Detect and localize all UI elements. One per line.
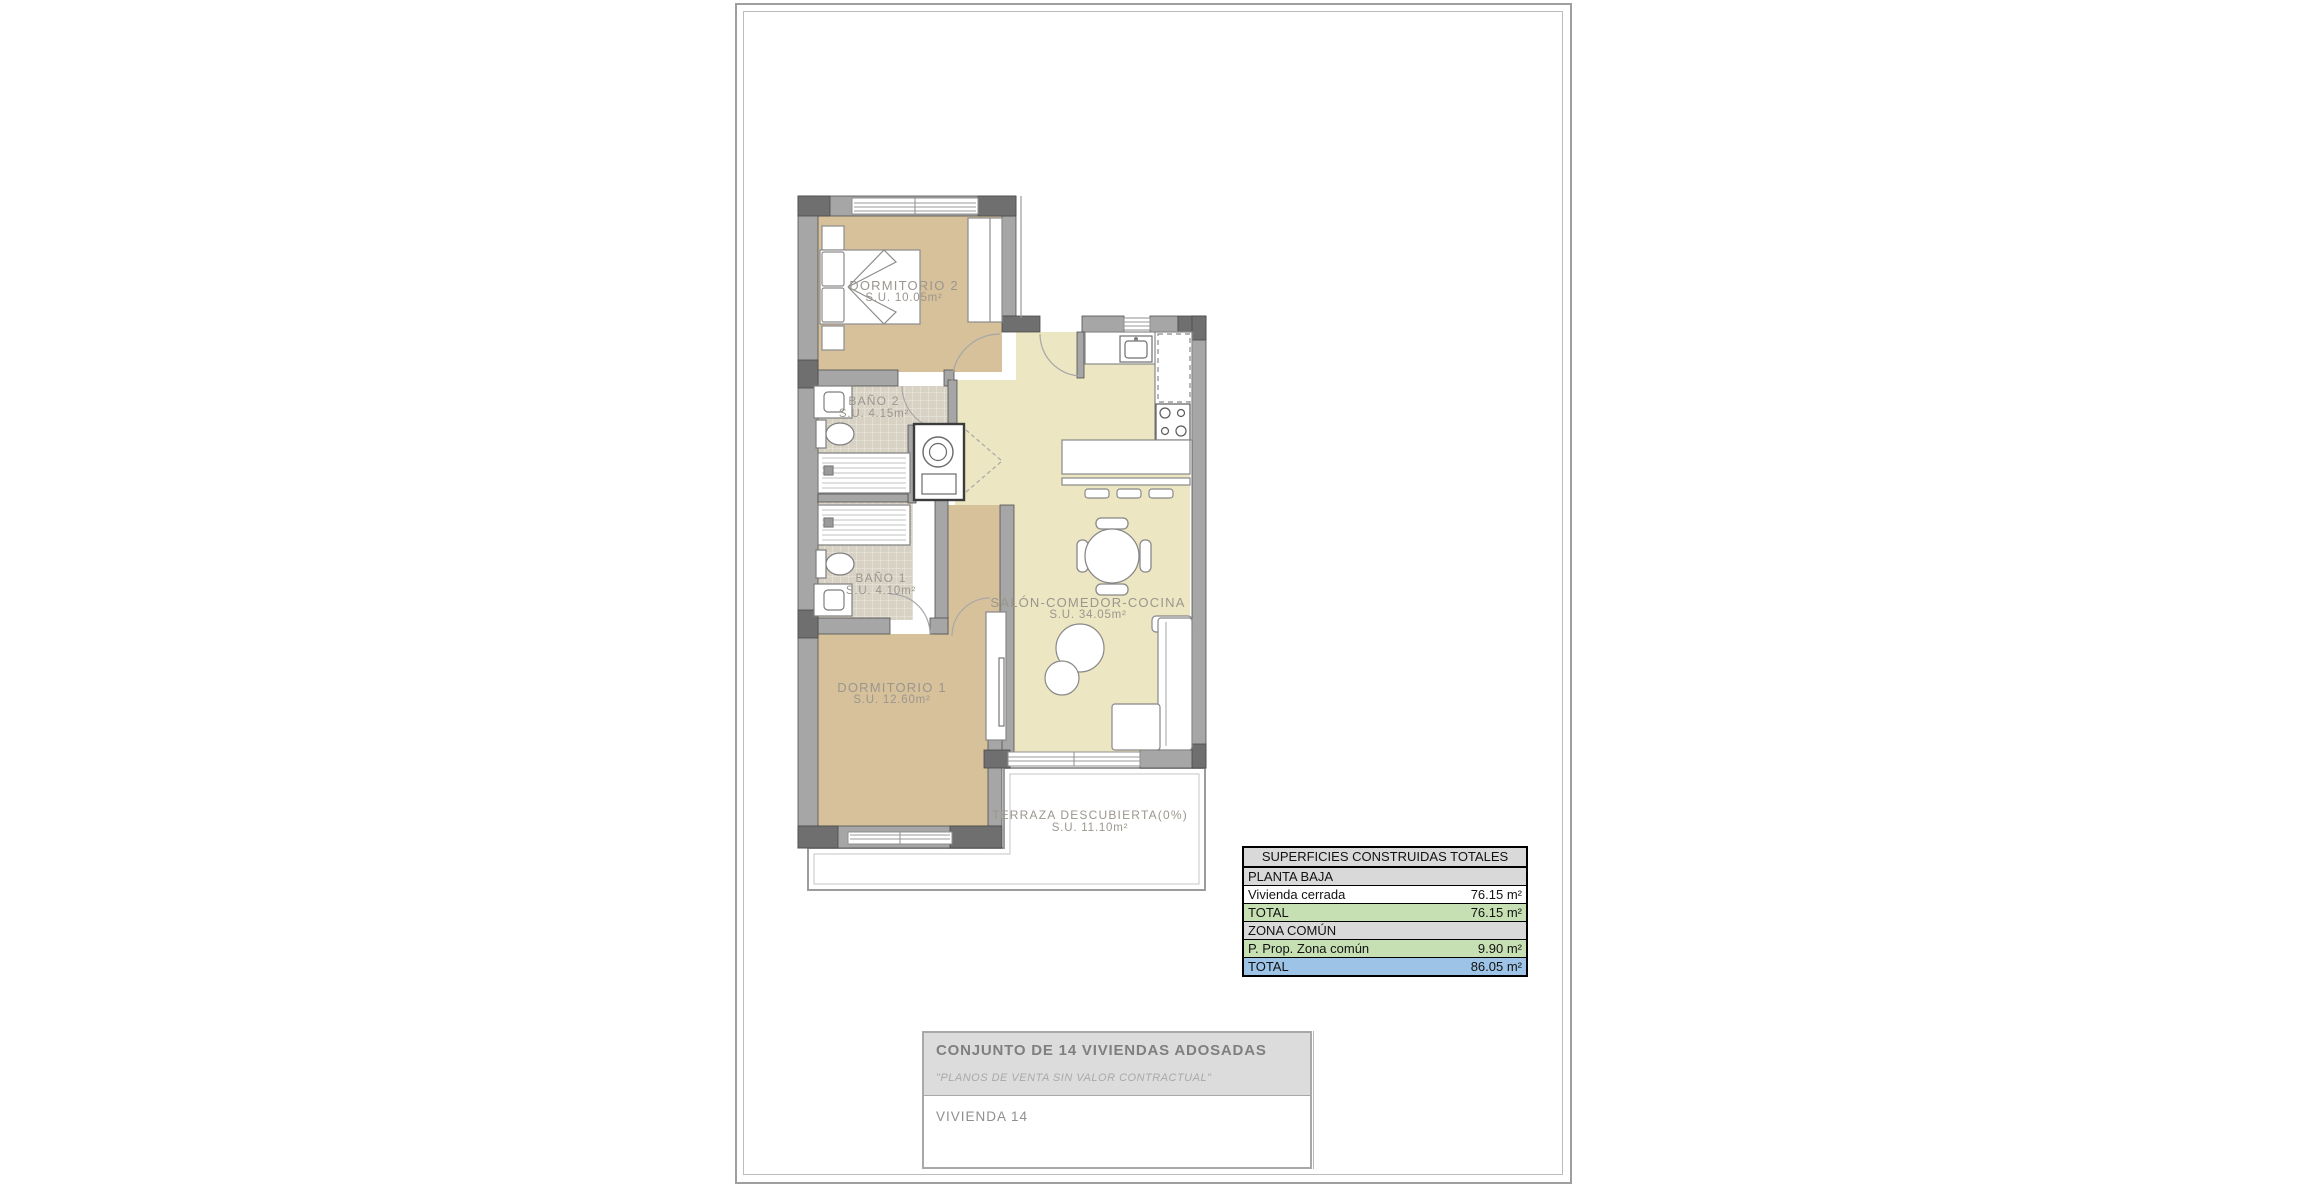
- stool-symbol: [1117, 489, 1141, 498]
- toilet-symbol: [816, 420, 826, 448]
- bedroom1-floor: [818, 634, 990, 830]
- shower-drain: [824, 518, 833, 527]
- bedroom1-bottom-window: [848, 832, 952, 844]
- nightstand-symbol: [822, 326, 844, 350]
- room-label-bano1: BAÑO 1 S.U. 4.10m²: [846, 572, 916, 598]
- toilet-symbol: [816, 550, 826, 578]
- tv-symbol: [999, 658, 1004, 726]
- table-row-prop-zona-comun: P. Prop. Zona común 9.90 m²: [1244, 940, 1526, 958]
- hob-symbol: [1156, 404, 1190, 440]
- room-label-terraza: TERRAZA DESCUBIERTA(0%) S.U. 11.10m²: [992, 809, 1188, 835]
- title-block-body: VIVIENDA 14: [924, 1096, 1310, 1137]
- nightstand-symbol: [822, 226, 844, 250]
- bedroom2-top-window: [852, 198, 978, 214]
- shower-drain: [824, 466, 833, 475]
- project-title: CONJUNTO DE 14 VIVIENDAS ADOSADAS: [936, 1042, 1298, 1059]
- unit-name: VIVIENDA 14: [936, 1109, 1298, 1124]
- title-block-side-line: [1313, 1031, 1314, 1169]
- wardrobe-symbol: [968, 218, 1002, 322]
- washer-symbol: [914, 424, 964, 500]
- dining-table-symbol: [1085, 529, 1139, 583]
- island-shelf: [1062, 478, 1190, 485]
- table-row-planta-baja: PLANTA BAJA: [1244, 868, 1526, 886]
- table-row-zona-comun: ZONA COMÚN: [1244, 922, 1526, 940]
- sofa-symbol: [1112, 704, 1160, 750]
- table-row-vivienda-cerrada: Vivienda cerrada 76.15 m²: [1244, 886, 1526, 904]
- pillow-symbol: [822, 288, 844, 322]
- kitchen-window: [1124, 318, 1150, 330]
- kitchen-island-symbol: [1062, 440, 1190, 474]
- chair-symbol: [1096, 584, 1128, 595]
- title-block-header: CONJUNTO DE 14 VIVIENDAS ADOSADAS "PLANO…: [924, 1033, 1310, 1096]
- sofa-symbol: [1158, 618, 1192, 750]
- chair-symbol: [1140, 540, 1151, 572]
- room-label-dormitorio2: DORMITORIO 2 S.U. 10.05m²: [849, 279, 959, 305]
- areas-table-title: SUPERFICIES CONSTRUIDAS TOTALES: [1244, 848, 1526, 868]
- pillow-symbol: [822, 252, 844, 286]
- living-slider-window: [1008, 752, 1140, 766]
- chair-symbol: [1096, 518, 1128, 529]
- table-row-total-planta-baja: TOTAL 76.15 m²: [1244, 904, 1526, 922]
- room-label-dormitorio1: DORMITORIO 1 S.U. 12.60m²: [837, 681, 947, 707]
- table-row-total-general: TOTAL 86.05 m²: [1244, 958, 1526, 975]
- stool-symbol: [1149, 489, 1173, 498]
- coffee-table-symbol: [1045, 661, 1079, 695]
- room-label-salon: SALÓN-COMEDOR-COCINA S.U. 34.05m²: [990, 596, 1185, 622]
- title-block: CONJUNTO DE 14 VIVIENDAS ADOSADAS "PLANO…: [922, 1031, 1312, 1169]
- stool-symbol: [1085, 489, 1109, 498]
- surface-areas-table: SUPERFICIES CONSTRUIDAS TOTALES PLANTA B…: [1242, 846, 1528, 977]
- room-label-bano2: BAÑO 2 S.U. 4.15m²: [839, 395, 909, 421]
- disclaimer-text: "PLANOS DE VENTA SIN VALOR CONTRACTUAL": [936, 1072, 1298, 1084]
